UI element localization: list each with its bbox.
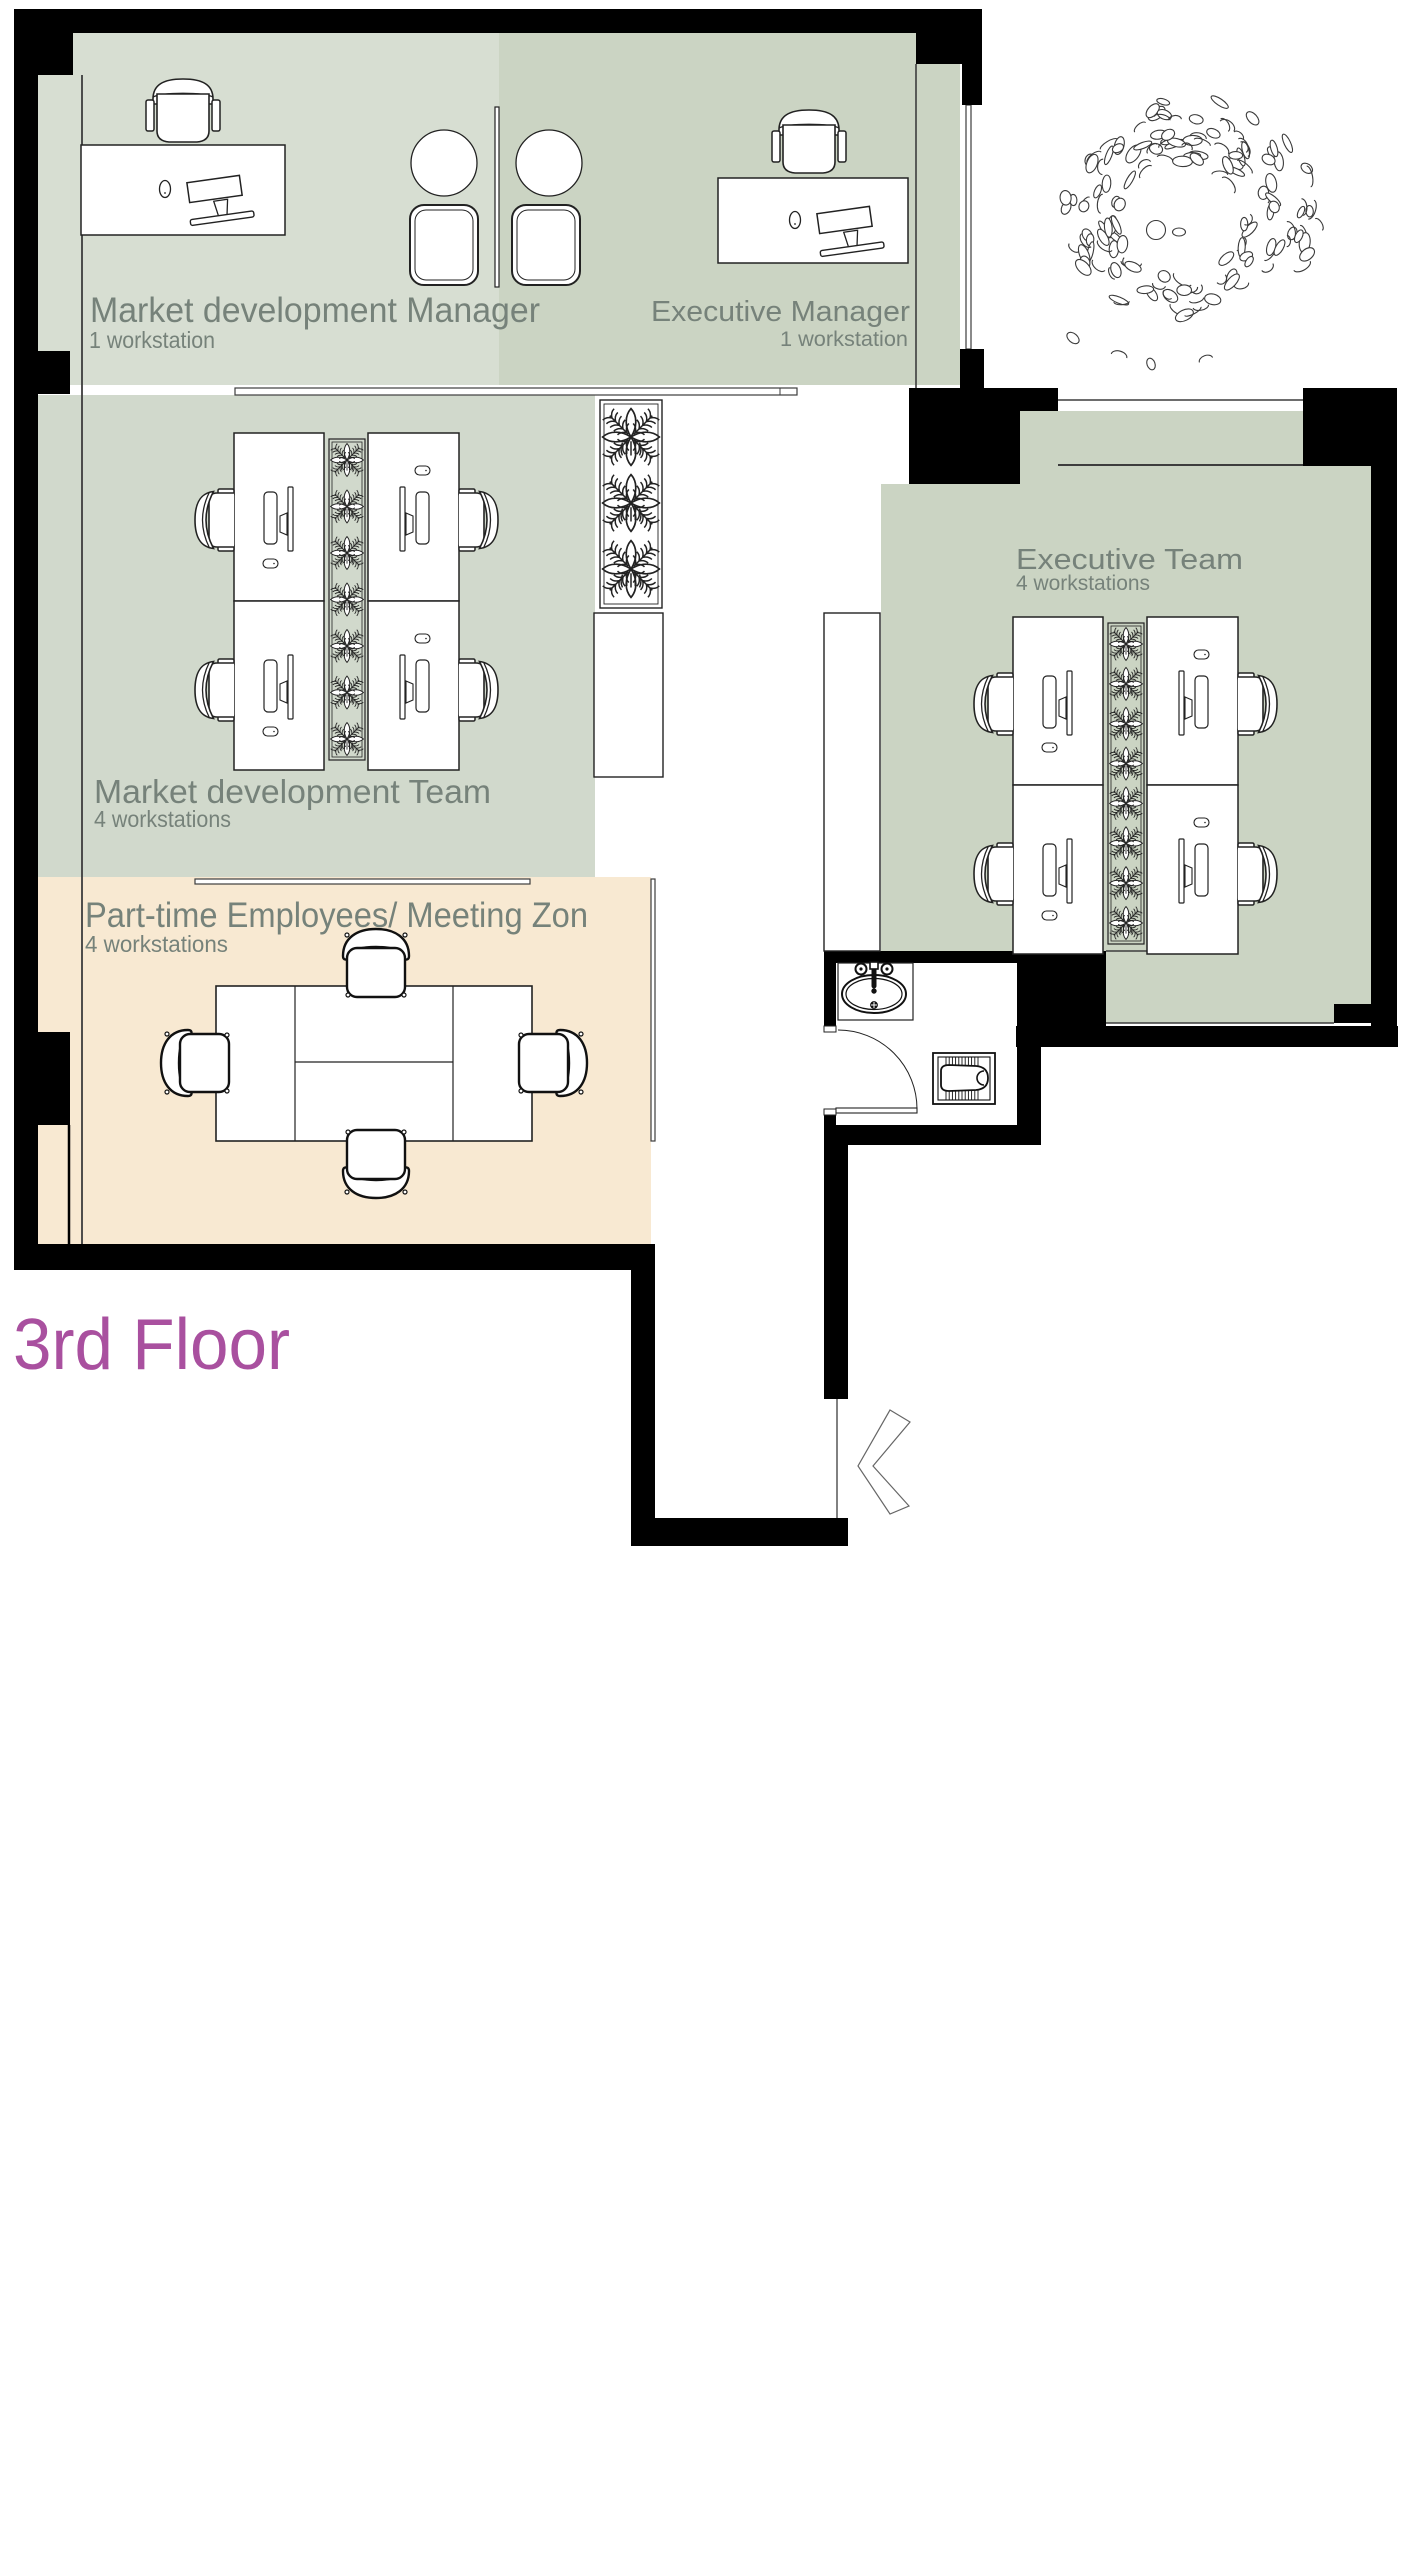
svg-text:4 workstations: 4 workstations: [85, 931, 228, 957]
svg-text:1 workstation: 1 workstation: [780, 328, 908, 351]
svg-text:Market development Team: Market development Team: [94, 773, 491, 810]
svg-text:4 workstations: 4 workstations: [94, 806, 231, 832]
svg-text:4 workstations: 4 workstations: [1016, 572, 1150, 595]
svg-text:Executive Manager: Executive Manager: [651, 296, 910, 328]
svg-text:1 workstation: 1 workstation: [89, 327, 215, 353]
svg-text:Part-time Employees/ Meeting Z: Part-time Employees/ Meeting Zon: [85, 896, 588, 935]
svg-text:Market development Manager: Market development Manager: [90, 291, 540, 330]
svg-text:3rd Floor: 3rd Floor: [13, 1305, 290, 1385]
